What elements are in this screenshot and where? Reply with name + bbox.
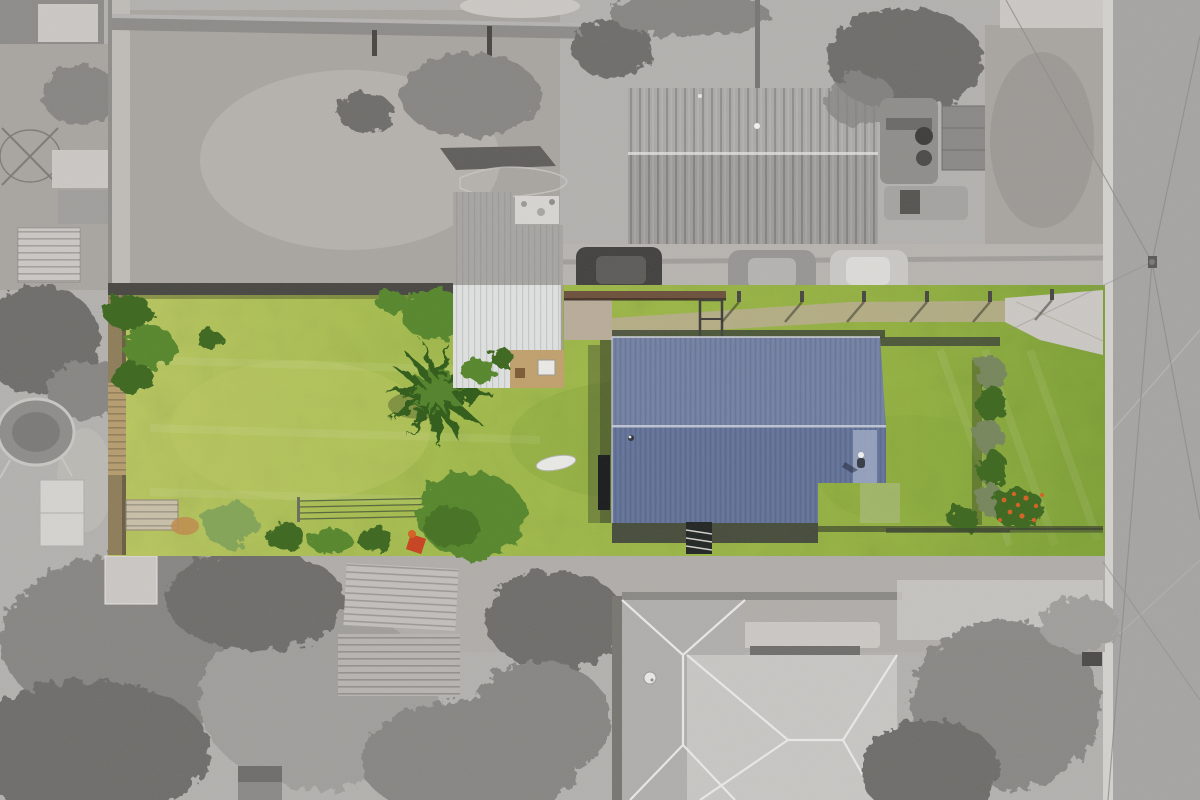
aerial-photo bbox=[0, 0, 1200, 800]
grain-overlay bbox=[0, 0, 1200, 800]
aerial-photo-canvas bbox=[0, 0, 1200, 800]
